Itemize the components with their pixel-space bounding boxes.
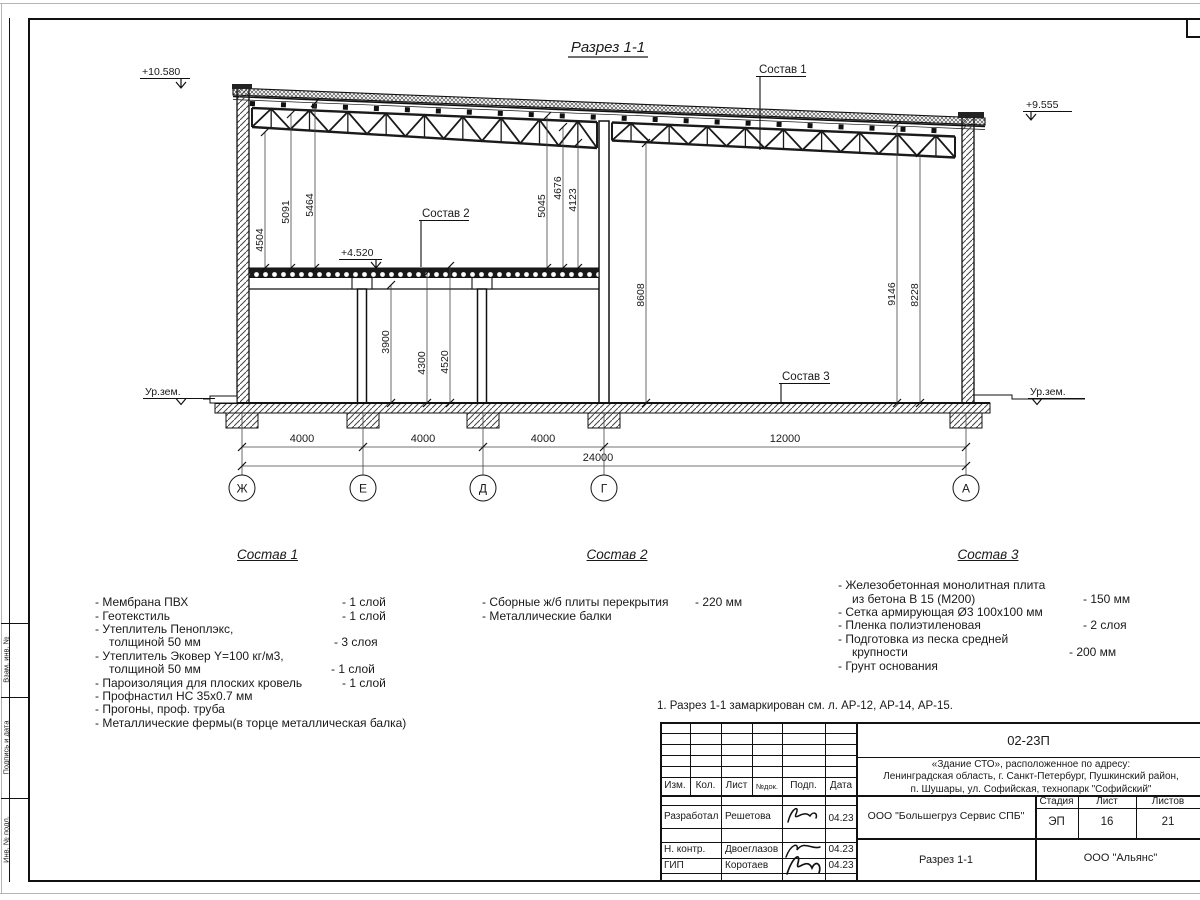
svg-text:+4.520: +4.520 <box>341 247 374 259</box>
dim-4504: 4504 <box>254 228 266 252</box>
tb-project-name: «Здание СТО», расположенное по адресу: Л… <box>857 759 1200 796</box>
composition-2: Состав 2 - Сборные ж/б плиты перекрытия-… <box>482 548 752 623</box>
axis-label-d: Д <box>479 482 487 496</box>
dim-4000-3: 4000 <box>531 433 555 445</box>
dim-4676: 4676 <box>552 176 564 200</box>
margin-divider <box>1 623 28 624</box>
tb-name-ncontrol: Двоеглазов <box>725 844 778 855</box>
wall-middle <box>599 121 609 403</box>
svg-text:+9.555: +9.555 <box>1026 99 1059 111</box>
dim-4520: 4520 <box>439 350 451 374</box>
tb-col-dok: №док. <box>752 782 782 791</box>
tb-role-developer: Разработал <box>664 811 718 822</box>
dim-4000-1: 4000 <box>290 433 314 445</box>
tb-document-code: 02-23П <box>857 733 1200 748</box>
tb-role-gip: ГИП <box>664 860 684 871</box>
composition-item: - Металлические фермы(в торце металличес… <box>95 717 440 730</box>
elevation-mezzanine: +4.520 <box>339 247 382 268</box>
svg-text:Состав 3: Состав 3 <box>782 371 830 383</box>
axis-label-zh: Ж <box>236 482 247 496</box>
composition-1: Состав 1 - Мембрана ПВХ- 1 слой - Геотек… <box>95 548 440 730</box>
dim-24000: 24000 <box>583 452 614 464</box>
svg-text:+10.580: +10.580 <box>142 66 180 78</box>
axis-label-e: Е <box>359 482 367 496</box>
callout-sostav3: Состав 3 <box>779 371 830 402</box>
dim-4000-2: 4000 <box>411 433 435 445</box>
composition-2-title: Состав 2 <box>482 548 752 561</box>
tb-col-podp: Подп. <box>782 780 825 791</box>
composition-item: - Утеплитель Эковер Y=100 кг/м3, <box>95 650 440 663</box>
dim-5091: 5091 <box>280 200 292 224</box>
tb-col-kol: Кол. <box>690 780 721 791</box>
ground-slab <box>203 395 1085 428</box>
composition-1-title: Состав 1 <box>95 548 440 561</box>
dim-8608: 8608 <box>635 283 647 307</box>
callout-sostav2: Состав 2 <box>419 208 470 267</box>
margin-label-vzam: Взам. инв. № <box>2 628 11 692</box>
margin-divider <box>1 798 28 799</box>
tb-sheet-label: Лист <box>1078 796 1136 807</box>
dim-4123: 4123 <box>567 188 579 212</box>
tb-stage-label: Стадия <box>1035 796 1078 807</box>
callout-sostav1: Состав 1 <box>756 64 807 150</box>
composition-3: Состав 3 - Железобетонная монолитная пли… <box>838 548 1138 673</box>
sheet-edge-bottom <box>0 893 1200 894</box>
sheet-note: 1. Разрез 1-1 замаркирован см. л. АР-12,… <box>657 700 953 712</box>
ground-level-left: Ур.зем. <box>143 386 215 405</box>
tb-col-list: Лист <box>721 780 752 791</box>
composition-item: толщиной 50 мм- 1 слой <box>95 663 440 676</box>
margin-divider <box>1 697 28 698</box>
composition-item: - Профнастил НС 35х0.7 мм <box>95 690 440 703</box>
composition-item: - Металлические балки <box>482 610 752 623</box>
tb-sheets-value: 21 <box>1136 816 1200 828</box>
axis-label-g: Г <box>601 482 608 496</box>
composition-item: из бетона В 15 (М200)- 150 мм <box>838 593 1138 606</box>
dim-8228: 8228 <box>909 283 921 307</box>
composition-item: - Подготовка из песка средней <box>838 633 1138 646</box>
tb-sheets-label: Листов <box>1136 796 1200 807</box>
composition-item: - Утеплитель Пеноплэкс, <box>95 623 440 636</box>
composition-item: - Геотекстиль- 1 слой <box>95 610 440 623</box>
mezzanine-floor <box>249 268 599 403</box>
dim-4300: 4300 <box>416 351 428 375</box>
tb-stage-value: ЭП <box>1035 816 1078 828</box>
margin-label-inv: Инв. № подл. <box>2 808 11 872</box>
tb-drawing-name: Разрез 1-1 <box>857 854 1035 866</box>
composition-item: - Пленка полиэтиленовая- 2 слоя <box>838 619 1138 632</box>
dim-5464: 5464 <box>304 193 316 217</box>
elevation-roof-right: +9.555 <box>1023 99 1072 120</box>
composition-item: толщиной 50 мм- 3 слоя <box>95 636 440 649</box>
wall-right <box>958 112 984 403</box>
tb-sheet-value: 16 <box>1078 816 1136 828</box>
margin-label-podpis: Подпись и дата <box>2 711 11 785</box>
mezzanine-column-d <box>478 289 487 403</box>
tb-date-gip: 04.23 <box>825 860 857 871</box>
composition-item: - Сборные ж/б плиты перекрытия- 220 мм <box>482 596 752 609</box>
composition-item: крупности- 200 мм <box>838 646 1138 659</box>
drawing-sheet: Взам. инв. № Подпись и дата Инв. № подл.… <box>0 0 1200 900</box>
tb-name-gip: Коротаев <box>725 860 768 871</box>
tb-name-developer: Решетова <box>725 811 771 822</box>
dim-5045: 5045 <box>536 194 548 218</box>
composition-item: - Грунт основания <box>838 660 1138 673</box>
tb-date-ncontrol: 04.23 <box>825 844 857 855</box>
axis-label-a: А <box>962 482 970 496</box>
section-drawing: Разрез 1-1 <box>0 0 1200 540</box>
composition-item: - Мембрана ПВХ- 1 слой <box>95 596 440 609</box>
dim-3900: 3900 <box>380 330 392 354</box>
svg-text:Ур.зем.: Ур.зем. <box>1030 386 1066 398</box>
dim-12000: 12000 <box>770 433 801 445</box>
title-block: Изм. Кол. Лист №док. Подп. Дата Разработ… <box>660 722 1200 882</box>
svg-text:Ур.зем.: Ур.зем. <box>145 386 181 398</box>
svg-text:Состав 2: Состав 2 <box>422 208 470 220</box>
tb-col-data: Дата <box>825 780 857 791</box>
svg-text:Состав 1: Состав 1 <box>759 64 807 76</box>
wall-left <box>232 84 252 403</box>
dim-9146: 9146 <box>886 282 898 306</box>
composition-item: - Пароизоляция для плоских кровель- 1 сл… <box>95 677 440 690</box>
tb-role-ncontrol: Н. контр. <box>664 844 705 855</box>
signatures <box>782 802 825 877</box>
composition-item: - Железобетонная монолитная плита <box>838 579 1138 592</box>
ground-level-right: Ур.зем. <box>1028 386 1085 405</box>
section-title: Разрез 1-1 <box>571 39 645 56</box>
tb-date-developer: 04.23 <box>825 813 857 824</box>
composition-item: - Прогоны, проф. труба <box>95 703 440 716</box>
elevation-roof-left: +10.580 <box>140 66 190 88</box>
truss-left <box>252 108 597 148</box>
composition-3-title: Состав 3 <box>838 548 1138 561</box>
tb-organization: ООО "Большегруз Сервис СПБ" <box>857 810 1035 822</box>
tb-contractor: ООО "Альянс" <box>1035 852 1200 864</box>
mezzanine-column-e <box>358 289 367 403</box>
composition-item: - Сетка армирующая Ø3 100х100 мм <box>838 606 1138 619</box>
tb-col-izm: Изм. <box>660 780 690 791</box>
